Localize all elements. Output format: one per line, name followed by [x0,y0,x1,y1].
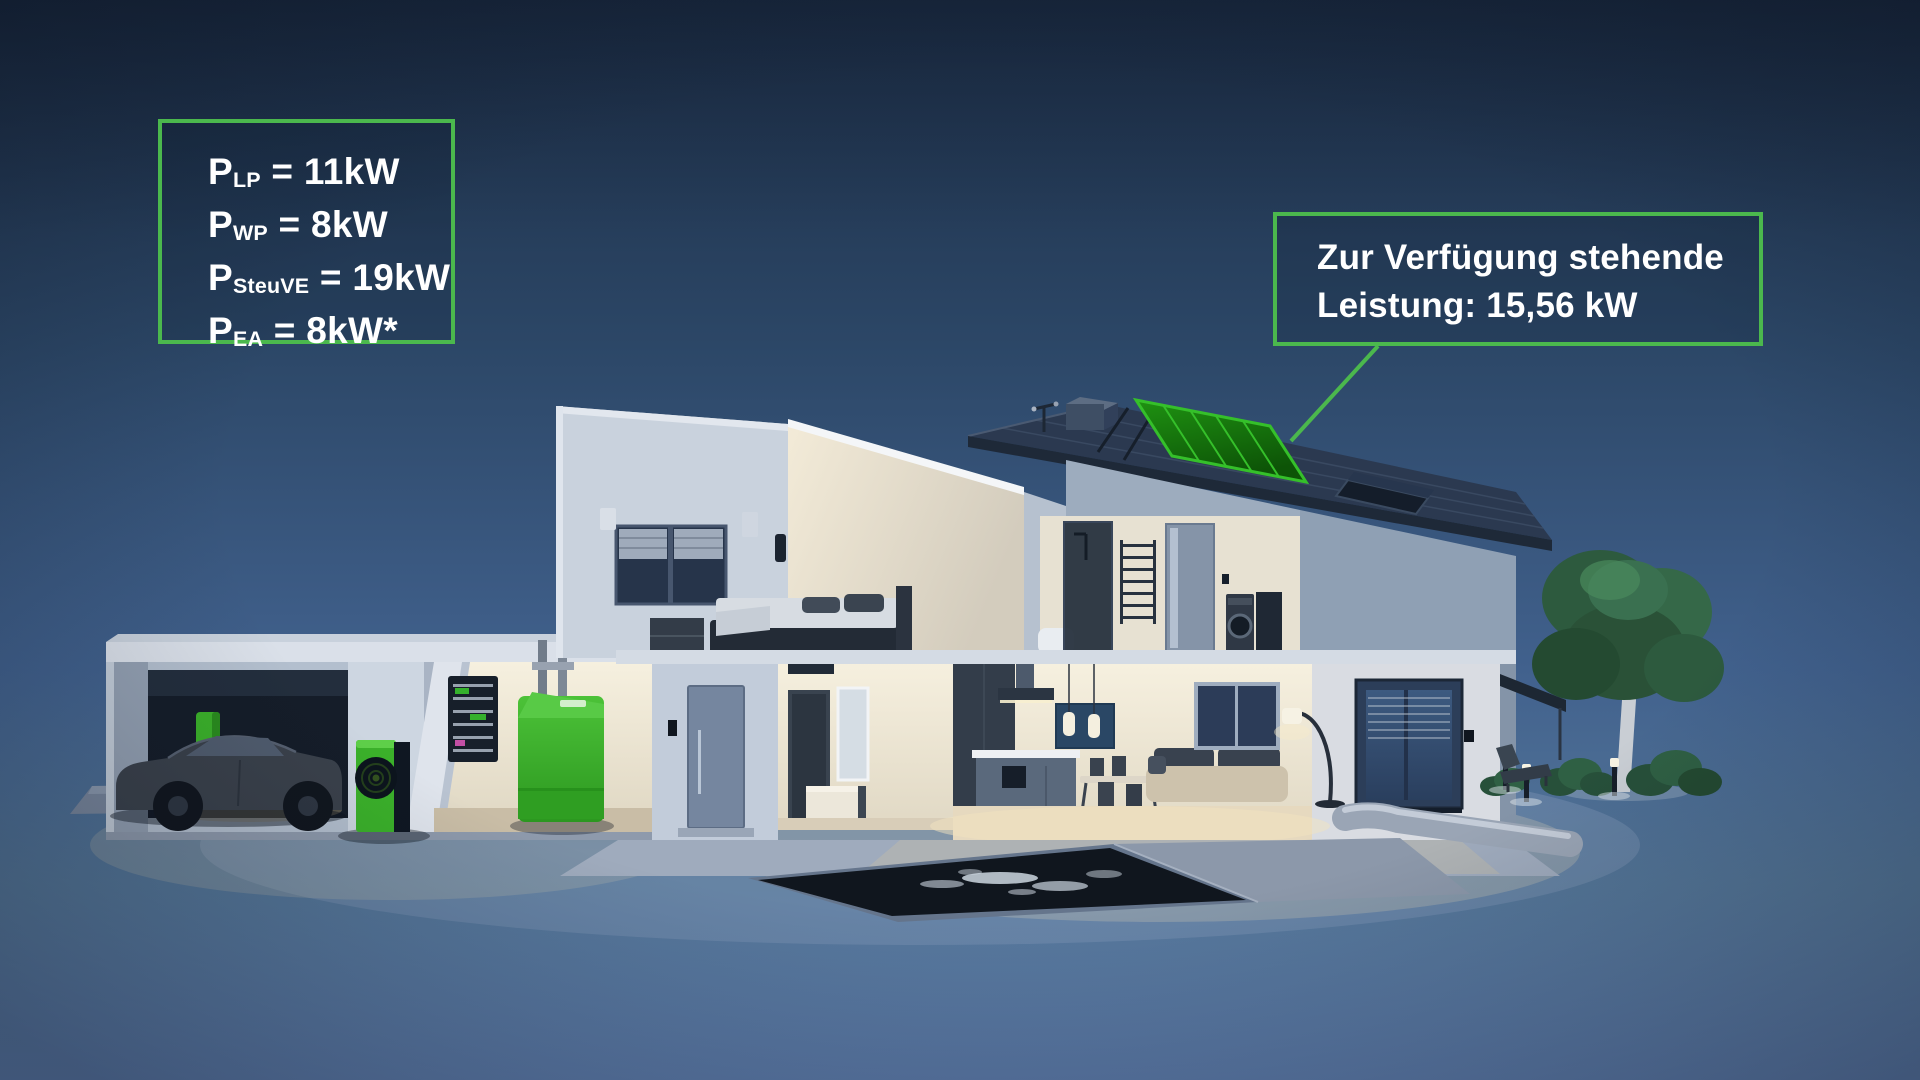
wall-lamp [742,512,758,537]
floor-slab [616,650,1516,664]
front-door [688,686,744,828]
doorbell-keypad [668,720,677,736]
power-subscript: LP [233,168,261,192]
power-value: = 8kW* [263,310,398,351]
power-value: = 19kW [309,257,450,298]
dryer-cabinet [1256,592,1282,652]
power-symbol: P [208,151,233,192]
power-symbol: P [208,204,233,245]
living-window [1196,684,1278,748]
living-room-cutaway [930,664,1345,846]
power-subscript: EA [233,327,263,351]
electrical-panel [448,676,498,762]
power-line-steuve: PSteuVE = 19kW [208,251,451,304]
bathroom-cutaway [1038,516,1300,654]
smart-home-illustration-stage: PLP = 11kW PWP = 8kW PSteuVE = 19kW PEA … [0,0,1920,1080]
sliding-doors [1356,680,1474,813]
callout-line-1: Zur Verfügung stehende [1317,234,1759,282]
power-subscript: WP [233,221,268,245]
power-line-ea: PEA = 8kW* [208,304,451,357]
wall-sensor [775,534,786,562]
entry-hall [778,660,954,830]
power-line-wp: PWP = 8kW [208,198,451,251]
power-value: = 8kW [268,204,388,245]
power-values-callout: PLP = 11kW PWP = 8kW PSteuVE = 19kW PEA … [158,119,455,344]
outdoor-switch [1464,730,1474,742]
entry-vestibule [652,650,778,840]
hall-mirror [838,688,868,780]
shower [1064,522,1112,652]
power-symbol: P [208,310,233,351]
power-subscript: SteuVE [233,274,309,298]
chimney [1066,397,1118,430]
power-symbol: P [208,257,233,298]
callout-leader-line [1291,346,1378,441]
callout-line-2: Leistung: 15,56 kW [1317,282,1759,330]
power-line-lp: PLP = 11kW [208,145,451,198]
wall-lamp [600,508,616,530]
washing-machine [1226,594,1254,652]
available-power-callout: Zur Verfügung stehende Leistung: 15,56 k… [1273,212,1763,346]
bedroom-window [616,526,726,604]
power-value: = 11kW [261,151,400,192]
sideboard [806,786,866,818]
